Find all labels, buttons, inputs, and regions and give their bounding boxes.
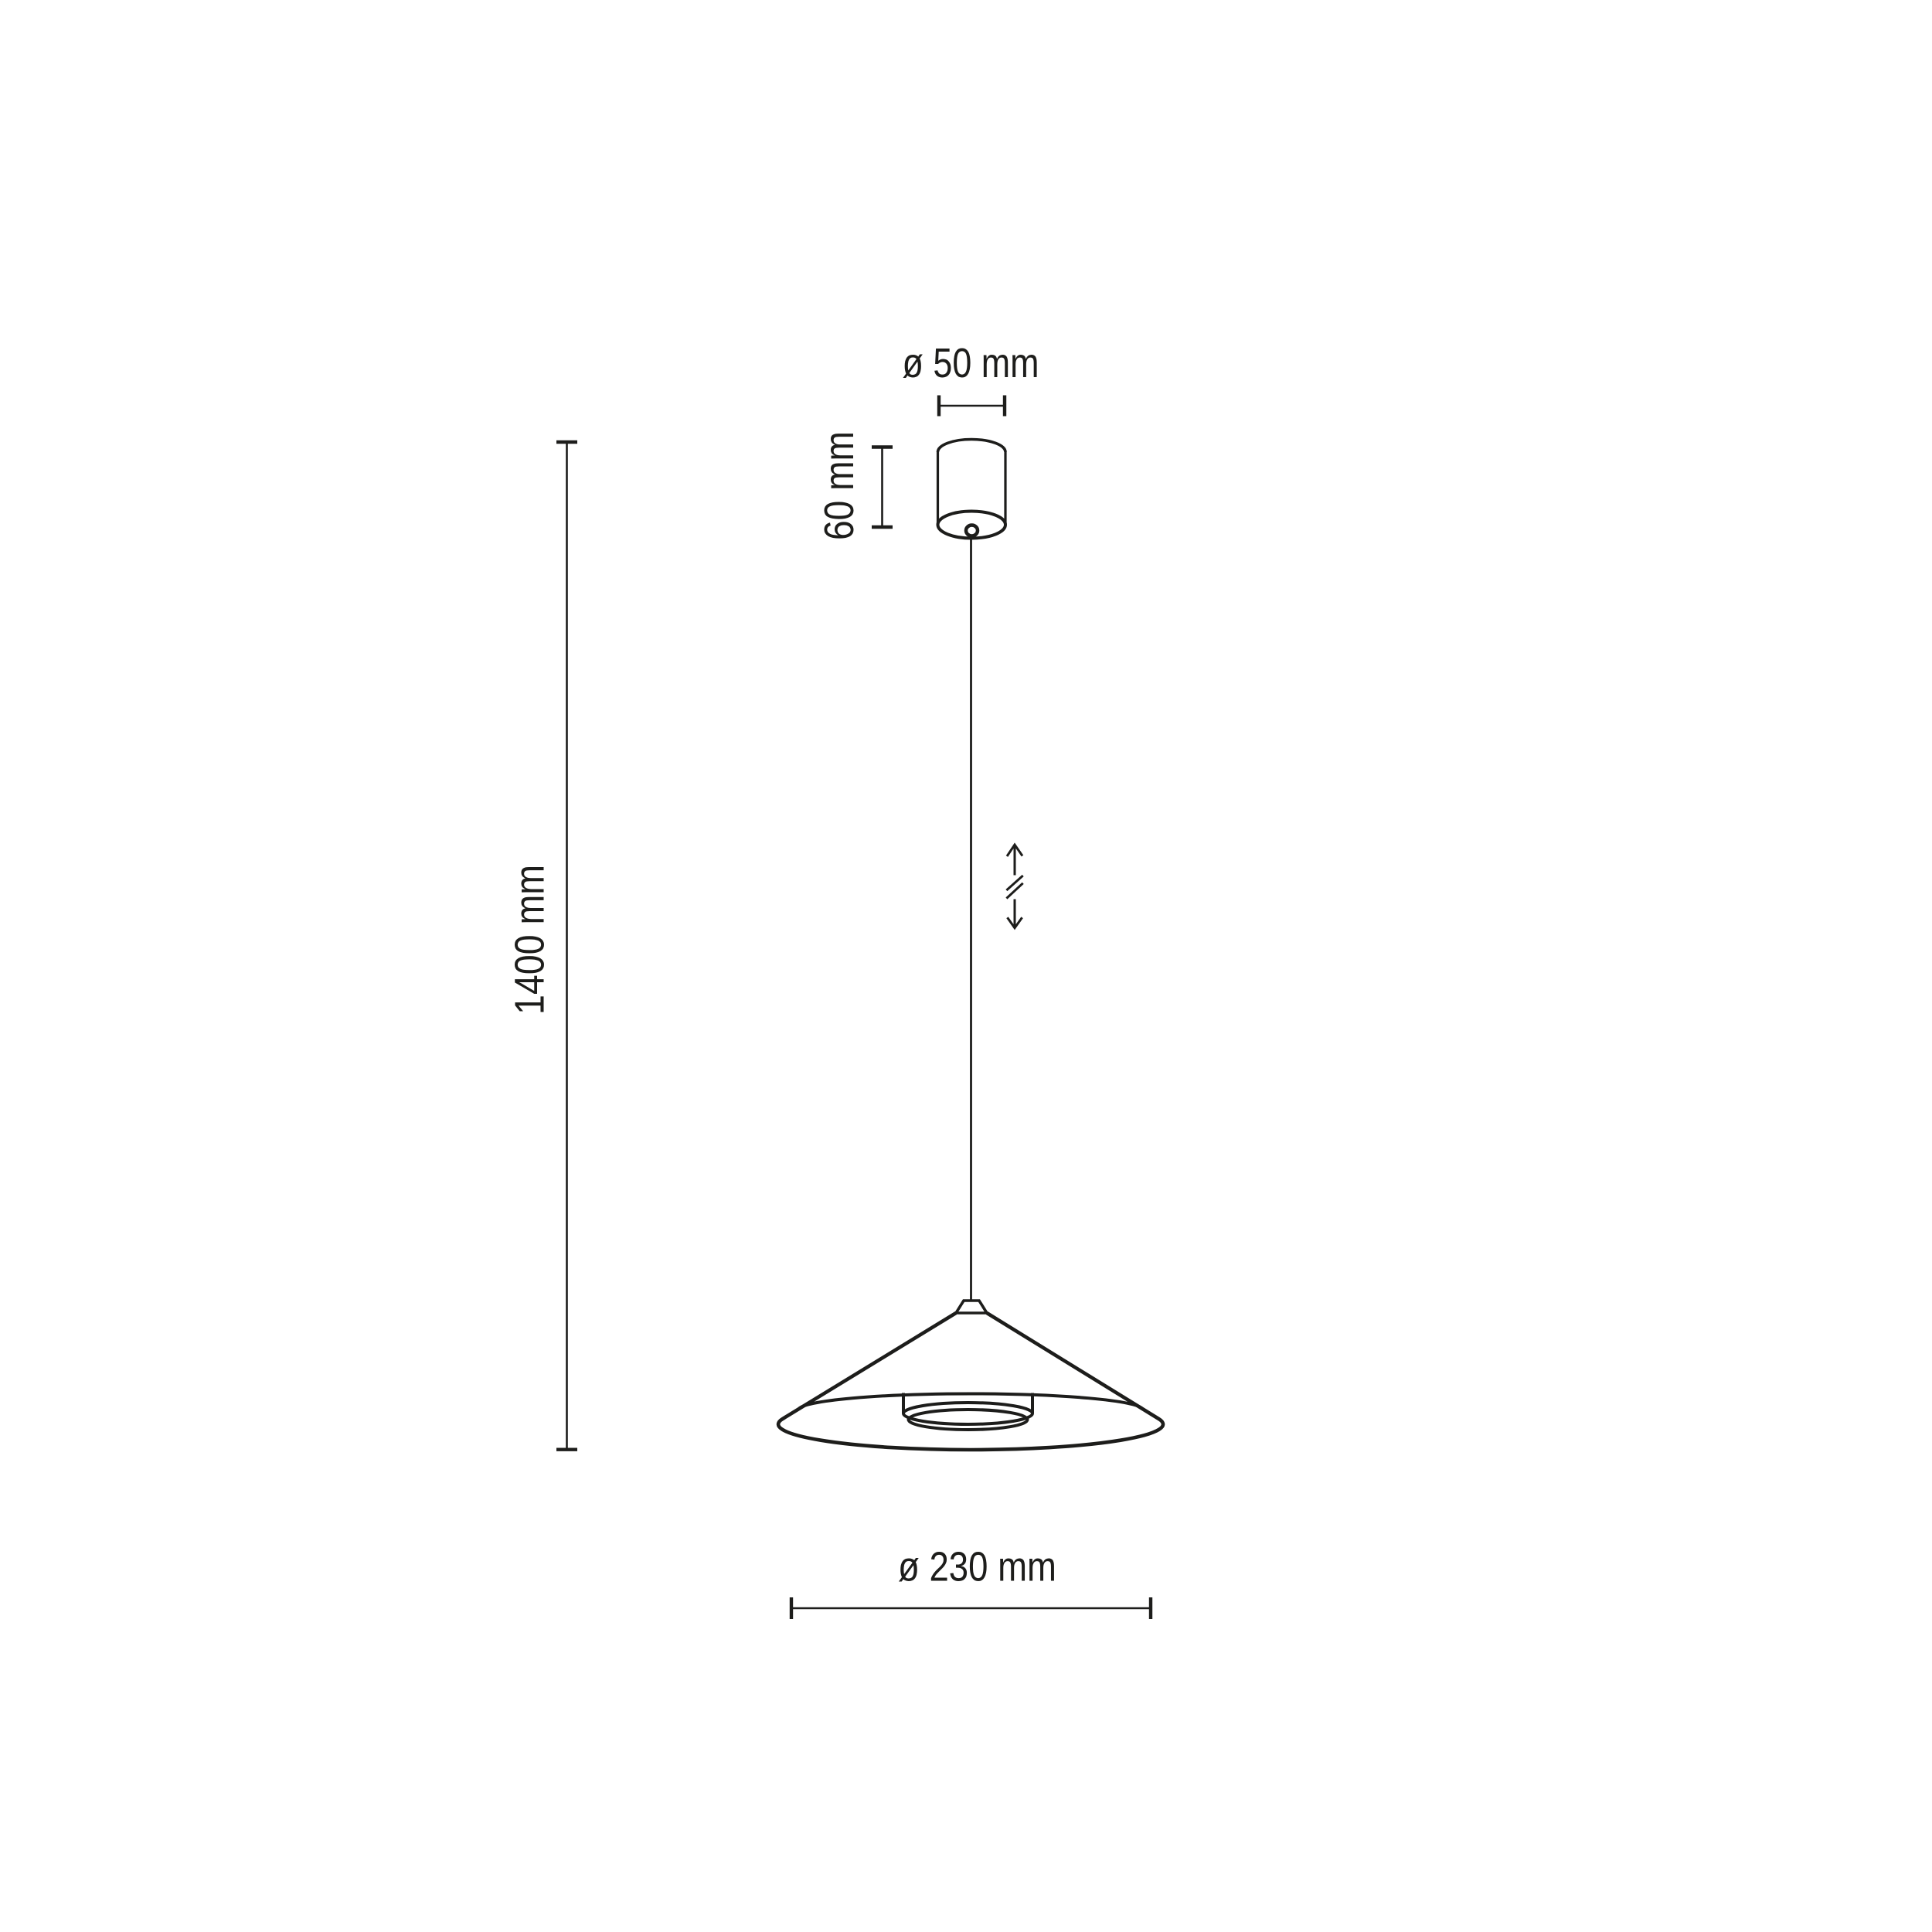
- svg-text:60 mm: 60 mm: [816, 431, 862, 540]
- svg-text:ø 230 mm: ø 230 mm: [898, 1544, 1056, 1590]
- svg-text:1400 mm: 1400 mm: [506, 865, 553, 1015]
- svg-text:ø 50 mm: ø 50 mm: [903, 340, 1039, 386]
